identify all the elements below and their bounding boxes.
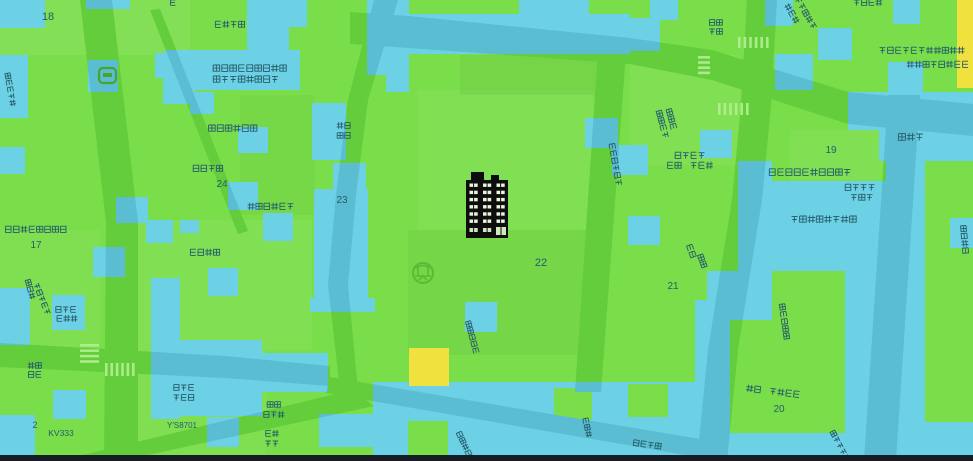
svg-text:20: 20 [773,404,785,415]
svg-text:Y'S8701: Y'S8701 [167,421,198,430]
svg-text:24: 24 [216,179,228,190]
svg-text:19: 19 [825,145,837,156]
svg-text:18: 18 [42,11,54,23]
svg-text:23: 23 [336,195,348,206]
svg-text:17: 17 [30,240,42,251]
svg-text:2: 2 [32,420,37,430]
svg-text:KV333: KV333 [48,428,74,438]
svg-text:21: 21 [667,281,679,292]
svg-text:22: 22 [535,257,547,269]
